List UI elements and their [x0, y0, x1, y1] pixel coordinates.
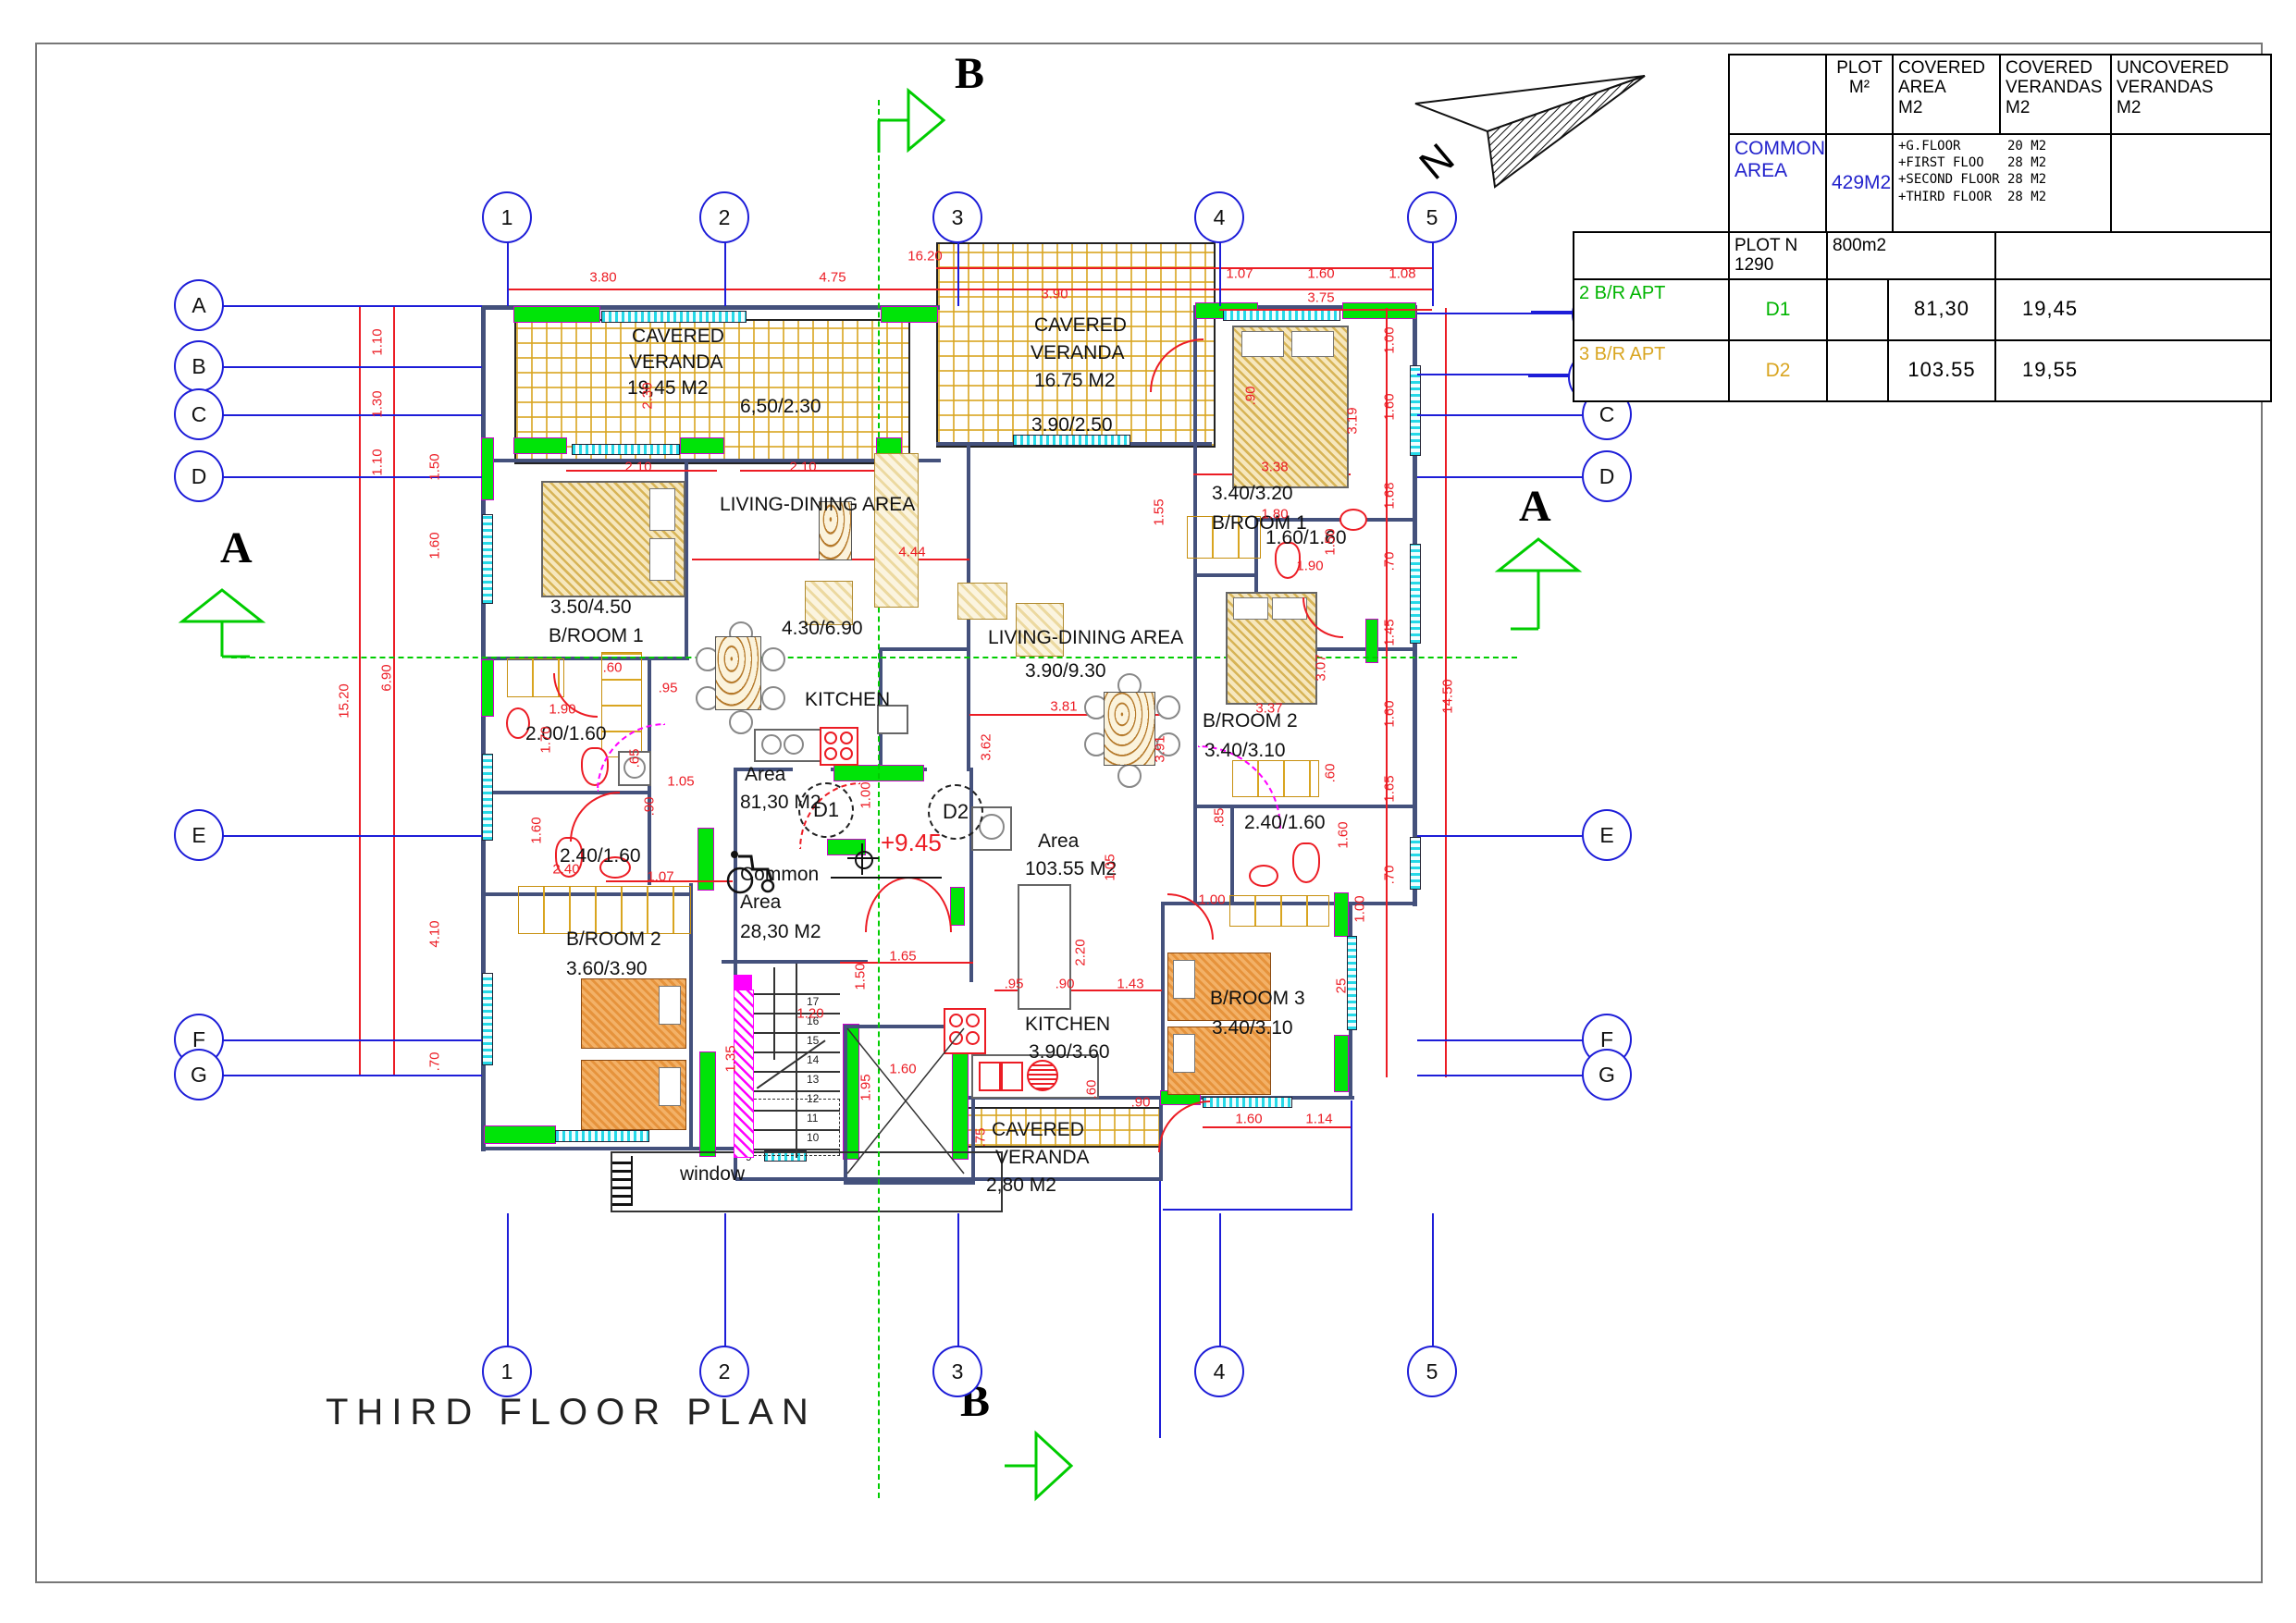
dimension-label: 2.40: [552, 863, 579, 877]
dimension-label: 1.05: [1104, 854, 1117, 880]
dimension-label: 3.80: [589, 271, 616, 285]
areas-header-uncovered-verandas: UNCOVERED VERANDAS M2: [2111, 55, 2271, 134]
hatched-wall: [734, 990, 754, 1158]
areas-table: PLOT M² COVERED AREA M2 COVERED VERANDAS…: [1728, 54, 2272, 233]
pillow: [659, 1067, 681, 1106]
dimension-label: 16.20: [907, 250, 943, 264]
grid-line: [1417, 1039, 1584, 1041]
grid-bubble-C: C: [174, 388, 224, 440]
dimension-label: 1.60: [1307, 267, 1334, 281]
green-wall: [1335, 1036, 1348, 1091]
dimension-label: .70: [428, 1052, 442, 1072]
dimension-label: .90: [1131, 1096, 1151, 1110]
drawing-sheet: N PLOT M² COVERED AREA M2 COVERED VERAND…: [0, 0, 2296, 1623]
plan-label: Area: [745, 764, 785, 786]
dimension-label: 1.30: [371, 390, 385, 417]
wall: [879, 647, 970, 651]
dimension-label: 1.60: [428, 532, 442, 559]
dimension-label: 1.70: [539, 726, 553, 753]
plan-label: KITCHEN: [805, 689, 890, 711]
boundary-line: [1163, 1209, 1352, 1211]
magenta-wall: [734, 975, 752, 990]
apartment-covered-area: 81,30: [1888, 279, 1995, 340]
plan-label: LIVING-DINING AREA: [988, 627, 1183, 649]
dimension-label: 3.62: [980, 733, 994, 760]
level-marker-cross: [861, 843, 863, 875]
grid-line: [1531, 311, 1574, 313]
plan-label: CAVERED: [1034, 314, 1127, 337]
dimension-label: 1.90: [1296, 559, 1323, 573]
dimension-label: 1.50: [428, 453, 442, 480]
porch-ladder: [612, 1156, 633, 1206]
dimension-label: 15.20: [338, 683, 352, 719]
dimension-label: 3.38: [1261, 461, 1288, 474]
boundary-line: [1159, 1181, 1161, 1438]
sink-bowl: [784, 734, 804, 755]
dimension-label: .95: [1005, 977, 1024, 991]
green-wall: [1335, 893, 1348, 936]
pillow: [1291, 331, 1334, 357]
dimension-label: 1.68: [1383, 482, 1397, 509]
sink-bowl: [979, 1062, 1001, 1091]
grid-bubble-2: 2: [699, 191, 749, 243]
grid-bubble-E: E: [174, 809, 224, 861]
stair-number: 12: [807, 1092, 819, 1105]
grid-line: [1417, 1075, 1584, 1076]
plan-label: Common: [740, 864, 819, 886]
areas-header-plot: PLOT M²: [1826, 55, 1893, 134]
grid-line: [1432, 1213, 1434, 1347]
dimension-label: 1.60: [1235, 1113, 1262, 1126]
window-strip: [482, 973, 493, 1065]
washbasin: [1249, 865, 1278, 887]
areas-header-covered-area: COVERED AREA M2: [1893, 55, 2000, 134]
wall: [481, 1147, 737, 1150]
green-wall: [877, 438, 901, 453]
dimension-label: 1.55: [1153, 498, 1167, 525]
burner: [966, 1031, 980, 1045]
plan-label: window: [680, 1163, 745, 1186]
green-wall: [514, 438, 566, 453]
grid-line: [223, 835, 482, 837]
dimension-label: 1.60: [530, 817, 544, 843]
grid-bubble-1: 1: [482, 1346, 532, 1397]
dimension-label: 1.20: [796, 1007, 823, 1021]
dimension-label: 1.65: [889, 950, 916, 964]
grid-line: [507, 1213, 509, 1347]
grid-line: [507, 241, 509, 306]
dimension-label: 1.90: [549, 703, 575, 717]
dimension-label: 4.75: [819, 271, 846, 285]
window-strip: [482, 754, 493, 841]
areas-cell-empty: [1729, 55, 1826, 134]
plan-label: 28,30 M2: [740, 921, 821, 943]
green-wall: [485, 1126, 555, 1143]
apartment-unit-d1: D1: [1729, 279, 1827, 340]
dimension-label: 4.10: [428, 920, 442, 947]
chair: [761, 647, 785, 671]
plan-label: 4.30/6.90: [782, 618, 863, 640]
pillow: [649, 488, 675, 531]
plan-label: 3.50/4.50: [550, 596, 632, 619]
plan-label: 2.40/1.60: [1244, 812, 1326, 834]
pillow: [1241, 331, 1284, 357]
dimension-label: 1.14: [1305, 1113, 1332, 1126]
dim-line: [507, 289, 1432, 290]
section-arrow-a-right: [1487, 532, 1589, 661]
dim-line: [1386, 308, 1388, 1077]
plan-label: 3.40/3.20: [1212, 483, 1293, 505]
stair-dashed-outline: [740, 1099, 840, 1156]
plan-label: CAVERED: [632, 326, 724, 348]
dimension-label: 1.95: [859, 1074, 873, 1100]
grid-line: [724, 1213, 726, 1347]
window-strip: [1410, 544, 1421, 644]
stair-number: 10: [807, 1131, 819, 1144]
dimension-label: 2.10: [624, 461, 651, 474]
grid-line: [223, 366, 482, 368]
dining-table: [1104, 692, 1155, 766]
grid-bubble-D: D: [1582, 450, 1632, 502]
pillow: [649, 538, 675, 581]
burner: [824, 747, 837, 760]
dimension-label: 1.08: [1389, 267, 1415, 281]
dimension-label: 6.90: [380, 664, 394, 691]
level-marker-line: [831, 877, 942, 879]
dimension-label: .70: [1383, 552, 1397, 572]
apartment-covered-verandas: 19,45: [1995, 279, 2271, 340]
grid-line: [223, 1039, 482, 1041]
dimension-label: 1.60: [1383, 700, 1397, 727]
dimension-label: 1.60: [1383, 393, 1397, 420]
dimension-label: 3.37: [1255, 702, 1282, 716]
apartment-row-label: 2 B/R APT: [1574, 279, 1729, 340]
wall: [1193, 573, 1258, 577]
grid-bubble-4: 4: [1194, 1346, 1244, 1397]
dimension-label: 25: [1335, 978, 1349, 994]
grid-line: [223, 305, 482, 307]
apartment-row-label: 3 B/R APT: [1574, 340, 1729, 401]
grid-bubble-G: G: [1582, 1049, 1632, 1100]
stair-number: 14: [807, 1053, 819, 1066]
plan-label: 6,50/2.30: [740, 396, 821, 418]
boundary-line: [1351, 1100, 1352, 1210]
dim-line: [359, 305, 361, 1075]
common-area-details: +G.FLOOR 20 M2 +FIRST FLOO 28 M2 +SECOND…: [1893, 134, 2111, 232]
plan-label: Area: [740, 891, 781, 914]
dimension-label: 1.00: [859, 781, 873, 808]
window-strip: [1410, 837, 1421, 890]
plan-label: Area: [1038, 830, 1079, 853]
dimension-label: .85: [1213, 808, 1227, 828]
dimension-label: 1.10: [371, 328, 385, 355]
dimension-label: .90: [1055, 977, 1075, 991]
window-strip: [601, 311, 747, 323]
plan-label: B/ROOM 3: [1210, 988, 1305, 1010]
plan-label: B/ROOM 2: [1203, 710, 1298, 732]
grid-bubble-3: 3: [932, 191, 982, 243]
green-wall: [482, 438, 493, 499]
plan-label: LIVING-DINING AREA: [720, 494, 915, 516]
north-letter: N: [1411, 135, 1463, 189]
dimension-label: 1.00: [1383, 326, 1397, 353]
grid-line: [1528, 375, 1571, 377]
dimension-label: 1.80: [1261, 508, 1288, 522]
dimension-label: 1.00: [1353, 895, 1367, 922]
dimension-label: .95: [659, 682, 678, 695]
plan-label: 3.90/2.50: [1031, 414, 1113, 436]
wall: [1193, 305, 1197, 904]
dimension-label: 3.91: [1154, 735, 1167, 762]
pillow: [1233, 597, 1268, 620]
plan-label: 16.75 M2: [1034, 370, 1116, 392]
dimension-label: 1.43: [1117, 977, 1143, 991]
grid-bubble-D: D: [174, 450, 224, 502]
common-area-plot: 429M2: [1826, 134, 1893, 232]
plan-label: 3.40/3.10: [1204, 740, 1286, 762]
drawing-title: THIRD FLOOR PLAN: [326, 1392, 817, 1433]
pillow: [1173, 960, 1195, 999]
grid-line: [957, 1213, 959, 1347]
green-wall: [700, 1052, 715, 1156]
pillow: [1173, 1034, 1195, 1073]
stair-number: 11: [807, 1112, 818, 1125]
unit-circle-d1: D1: [798, 782, 854, 838]
dimension-label: .70: [1383, 866, 1397, 885]
dimension-label: .60: [603, 661, 623, 675]
wardrobe: [518, 886, 691, 934]
grid-line: [1417, 476, 1584, 478]
north-arrow-icon: N: [1406, 48, 1665, 196]
grid-bubble-A: A: [174, 279, 224, 331]
green-wall: [514, 307, 599, 322]
grid-bubble-3: 3: [932, 1346, 982, 1397]
grid-bubble-G: G: [174, 1049, 224, 1100]
apartment-unit-d2: D2: [1729, 340, 1827, 401]
section-letter-b: B: [955, 48, 984, 99]
grid-bubble-4: 4: [1194, 191, 1244, 243]
dimension-label: 2.30: [641, 382, 655, 409]
apartment-covered-verandas: 19,55: [1995, 340, 2271, 401]
dimension-label: 14.50: [1441, 679, 1455, 714]
dimension-label: 1.60: [1337, 821, 1351, 848]
dimension-label: .75: [974, 1128, 988, 1148]
grid-line: [1417, 414, 1584, 416]
level-value: +9.45: [881, 829, 942, 857]
grid-line: [1432, 241, 1434, 306]
window-strip: [1410, 365, 1421, 456]
wall: [1161, 902, 1165, 1098]
level-marker-icon: [855, 851, 873, 869]
dimension-label: 1.10: [371, 449, 385, 475]
sink-bowl: [761, 734, 782, 755]
dimension-label: 3.19: [1346, 407, 1360, 434]
grid-line: [1417, 835, 1584, 837]
plan-label: 3.40/3.10: [1212, 1017, 1293, 1039]
sofa: [874, 453, 919, 608]
grid-bubble-E: E: [1582, 809, 1632, 861]
dimension-label: 1.35: [724, 1045, 738, 1072]
chair: [1117, 764, 1142, 788]
grid-bubble-5: 5: [1407, 1346, 1457, 1397]
dim-line: [1219, 309, 1432, 311]
green-wall: [482, 660, 493, 716]
dimension-label: .60: [1085, 1080, 1099, 1100]
dimension-label: .90: [1244, 387, 1258, 406]
plan-label: VERANDA: [629, 351, 723, 374]
section-letter-a: A: [220, 523, 253, 573]
section-arrow-a-left: [171, 583, 273, 666]
common-area-label: COMMON AREA: [1729, 134, 1826, 232]
plan-label: 2,80 M2: [986, 1174, 1056, 1197]
section-line-b: [878, 100, 880, 1498]
sofa: [957, 583, 1007, 620]
green-wall: [882, 307, 937, 322]
grid-line: [223, 414, 482, 416]
grid-bubble-1: 1: [482, 191, 532, 243]
grid-bubble-5: 5: [1407, 191, 1457, 243]
dimension-label: 1.05: [667, 775, 694, 789]
burner: [840, 747, 853, 760]
wall: [481, 459, 941, 462]
burner: [966, 1014, 980, 1027]
sink-drainer: [1027, 1060, 1058, 1091]
dimension-label: .90: [643, 797, 657, 817]
dimension-label: .65: [628, 749, 642, 768]
window-strip: [572, 444, 680, 455]
dimension-label: 1.00: [1198, 893, 1225, 907]
grid-line: [1219, 1213, 1221, 1347]
grid-line: [1417, 313, 1573, 314]
grid-line: [957, 241, 959, 306]
dim-line: [936, 267, 1432, 269]
wardrobe: [1229, 895, 1329, 927]
plan-label: VERANDA: [995, 1147, 1090, 1169]
plot-size-value: 800m2: [1827, 232, 1995, 279]
dining-table: [715, 636, 761, 710]
chair: [1156, 695, 1180, 719]
apartments-table: PLOT N 1290 800m2 2 B/R APT D1 81,30 19,…: [1573, 231, 2272, 402]
burner: [949, 1014, 963, 1027]
green-wall: [951, 888, 964, 925]
level-marker-cross: [847, 857, 879, 859]
dimension-label: 4.44: [898, 546, 925, 559]
dimension-label: 1.07: [1226, 267, 1253, 281]
plan-label: 3.60/3.90: [566, 958, 648, 980]
dimension-label: 1.50: [1324, 528, 1338, 555]
toilet: [1292, 842, 1320, 883]
dimension-label: 1.45: [1383, 619, 1397, 646]
dimension-label: 3.07: [1315, 654, 1328, 681]
areas-header-covered-verandas: COVERED VERANDAS M2: [2000, 55, 2111, 134]
plan-label: B/ROOM 1: [549, 625, 644, 647]
dimension-label: 1.07: [647, 870, 673, 884]
grid-line: [1219, 241, 1221, 306]
chair: [729, 710, 753, 734]
plan-label: B/ROOM 2: [566, 928, 661, 951]
stair-number: 15: [807, 1034, 819, 1047]
chair: [761, 686, 785, 710]
window-strip: [482, 514, 493, 604]
dimension-label: 3.75: [1307, 291, 1334, 305]
green-wall: [1343, 303, 1415, 318]
burner: [840, 732, 853, 744]
grid-line: [223, 1075, 482, 1076]
grid-bubble-B: B: [174, 340, 224, 392]
dimension-label: 1.60: [889, 1063, 916, 1076]
dimension-label: 2.10: [789, 461, 816, 474]
dimension-label: 1.50: [854, 963, 868, 990]
section-letter-a: A: [1519, 481, 1551, 532]
stair-number: 13: [807, 1073, 819, 1086]
window-strip: [555, 1130, 649, 1142]
grid-bubble-2: 2: [699, 1346, 749, 1397]
apartment-covered-area: 103.55: [1888, 340, 1995, 401]
plan-label: KITCHEN: [1025, 1014, 1110, 1036]
sink-bowl: [1001, 1062, 1023, 1091]
grid-line: [223, 476, 482, 478]
dimension-label: 3.81: [1050, 700, 1077, 714]
section-arrow-b-bottom: [997, 1422, 1099, 1510]
dimension-label: 1.65: [1383, 775, 1397, 802]
window-strip: [1203, 1097, 1292, 1108]
dimension-label: 2.20: [1074, 939, 1088, 965]
dimension-label: .60: [1324, 764, 1338, 783]
dimension-label: 3.90: [1041, 288, 1068, 301]
plan-label: CAVERED: [992, 1119, 1084, 1141]
plan-label: 3.90/9.30: [1025, 660, 1106, 682]
plan-label: 3.90/3.60: [1029, 1041, 1110, 1064]
green-wall: [681, 438, 723, 453]
pillow: [659, 986, 681, 1025]
plan-label: VERANDA: [1031, 342, 1125, 364]
burner: [824, 732, 837, 744]
grid-line: [724, 241, 726, 306]
plot-number-label: PLOT N 1290: [1729, 232, 1827, 279]
